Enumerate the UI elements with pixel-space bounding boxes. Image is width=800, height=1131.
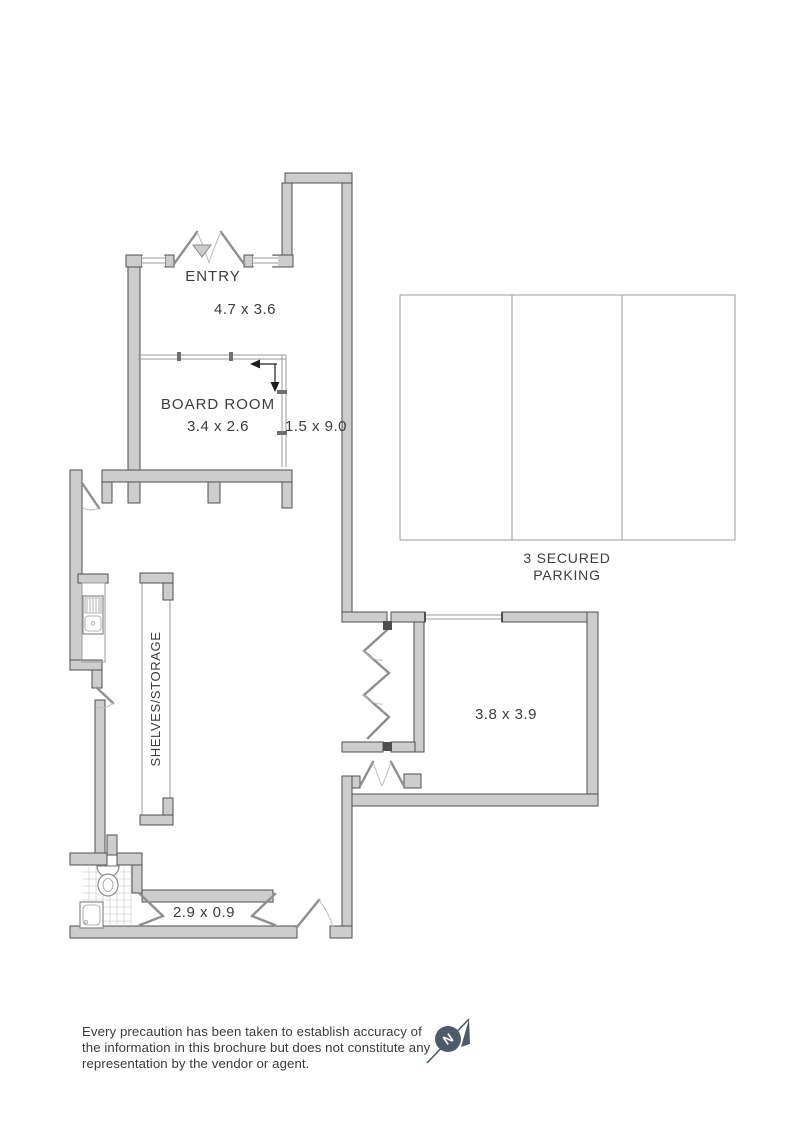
kitchen-sink-icon xyxy=(83,596,103,634)
toilet-icon xyxy=(97,866,119,896)
storage-label: SHELVES/STORAGE xyxy=(148,632,163,767)
parking-bays xyxy=(400,295,735,540)
direction-arrows xyxy=(250,360,280,393)
entry-dims: 4.7 x 3.6 xyxy=(214,301,276,318)
disclaimer: Every precaution has been taken to estab… xyxy=(82,1024,431,1071)
parking-label-line1: 3 SECURED xyxy=(523,550,610,566)
entry-marker-triangle xyxy=(193,245,211,257)
floorplan-page: ENTRY 4.7 x 3.6 BOARD ROOM 3.4 x 2.6 1.5… xyxy=(0,0,800,1131)
main-entry-door xyxy=(82,483,99,510)
store-room-window xyxy=(424,612,503,622)
board-room-dims: 3.4 x 2.6 xyxy=(187,418,249,435)
parking-label-line2: PARKING xyxy=(533,567,601,583)
hallway-dims: 1.5 x 9.0 xyxy=(285,418,347,435)
north-compass-icon: N xyxy=(427,1019,470,1063)
store-room-dims: 3.8 x 3.9 xyxy=(475,706,537,723)
exterior-door xyxy=(297,900,333,927)
board-room-label: BOARD ROOM xyxy=(161,396,275,413)
disclaimer-line1: Every precaution has been taken to estab… xyxy=(82,1024,422,1039)
bifold-door xyxy=(360,762,404,786)
disclaimer-line3: representation by the vendor or agent. xyxy=(82,1056,309,1071)
floor-plan: ENTRY 4.7 x 3.6 BOARD ROOM 3.4 x 2.6 1.5… xyxy=(0,0,800,1131)
basin-icon xyxy=(80,902,103,928)
passage-dims: 2.9 x 0.9 xyxy=(173,904,235,921)
entry-double-door xyxy=(174,232,244,264)
bathroom-tiles xyxy=(80,865,132,928)
kitchen-counter xyxy=(78,574,108,662)
accordion-door xyxy=(364,621,392,751)
entry-label: ENTRY xyxy=(185,268,241,285)
disclaimer-line2: the information in this brochure but doe… xyxy=(82,1040,431,1055)
